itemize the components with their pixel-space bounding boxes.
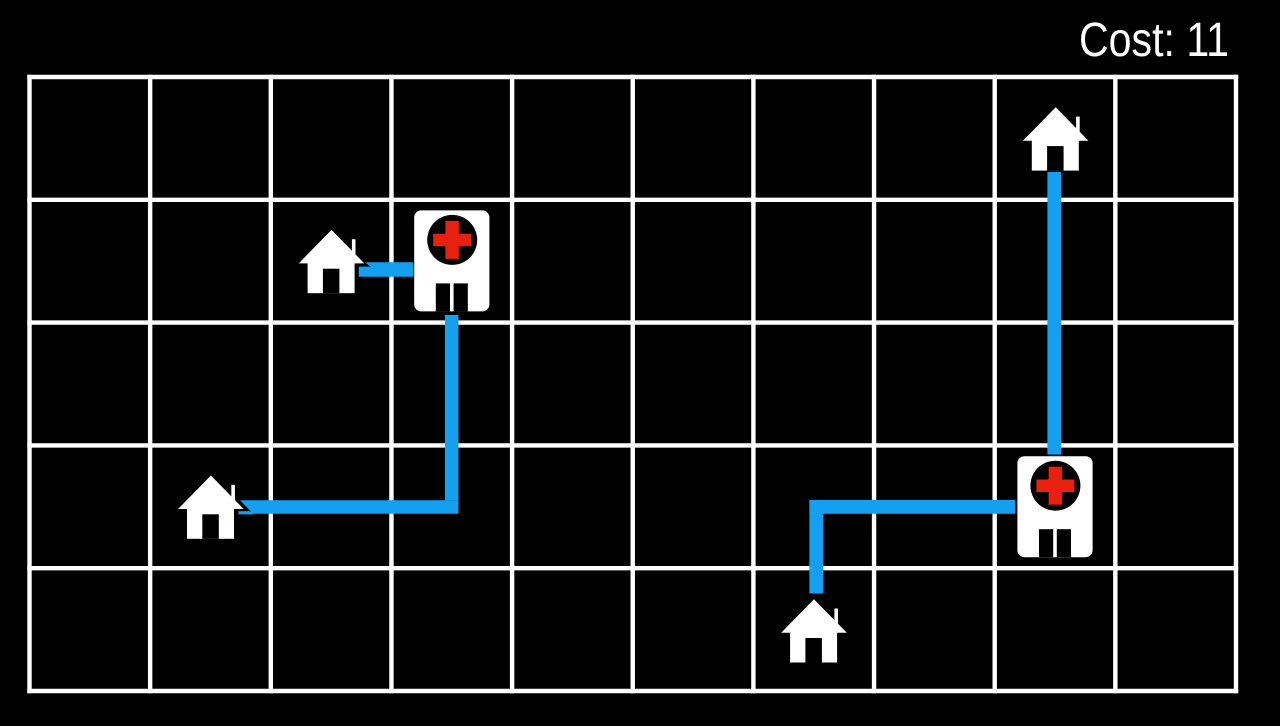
svg-text:Cost: 11: Cost: 11	[1079, 14, 1229, 67]
